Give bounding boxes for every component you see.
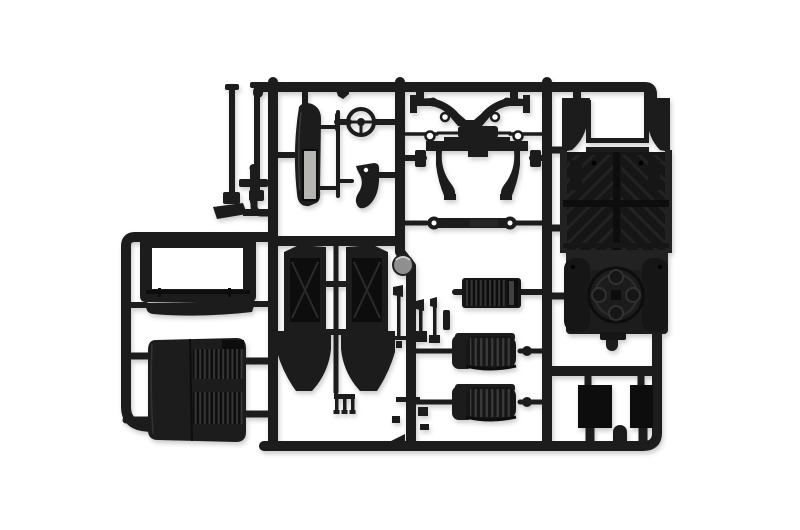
photo-stage (0, 0, 800, 530)
side-blade-panel (295, 103, 321, 206)
cowl-panel (146, 301, 254, 316)
gray-disc (393, 255, 413, 275)
gray-inset (303, 150, 317, 200)
sprue-photo (0, 0, 800, 530)
windshield-frame (140, 236, 256, 302)
engine-block (564, 250, 668, 340)
fork-fitting (334, 394, 356, 414)
radiator-grille (148, 338, 246, 442)
drag-link (427, 217, 517, 230)
pedal-board (462, 278, 521, 308)
